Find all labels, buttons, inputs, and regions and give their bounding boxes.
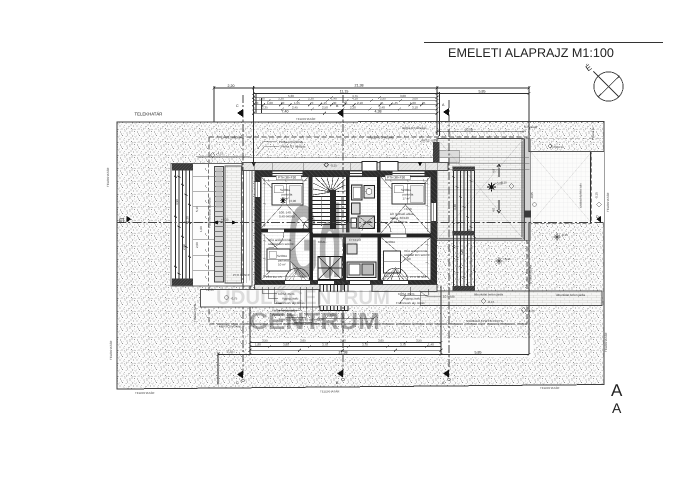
svg-text:szabad építési sáv: szabad építési sáv [579,183,583,208]
svg-text:90: 90 [255,101,259,105]
svg-text:KŐSZ 45cm: KŐSZ 45cm [398,292,415,296]
svg-text:2,55: 2,55 [380,97,386,101]
svg-text:30: 30 [467,228,471,232]
svg-text:1,20: 1,20 [186,216,190,222]
svg-text:C: C [236,104,239,108]
svg-text:TELEKHATÁR: TELEKHATÁR [540,386,560,390]
svg-text:A: A [612,400,622,416]
svg-text:PTH thn 7/5: PTH thn 7/5 [266,275,282,279]
svg-text:2,00: 2,00 [182,244,186,250]
svg-text:C: C [236,381,239,385]
svg-text:2,20: 2,20 [350,105,356,109]
svg-text:D: D [596,215,599,219]
svg-text:-0,05: -0,05 [530,192,534,199]
svg-text:2,45: 2,45 [292,105,298,109]
svg-text:3,40: 3,40 [453,204,457,210]
svg-text:2,50: 2,50 [322,105,328,109]
svg-text:Pallo kavicsolt burkolat: Pallo kavicsolt burkolat [208,197,212,228]
svg-text:3,00: 3,00 [400,94,406,98]
svg-text:10,06: 10,06 [465,128,473,132]
svg-text:5,85: 5,85 [479,89,486,93]
svg-text:3,55: 3,55 [416,339,422,343]
svg-text:A: A [611,381,623,400]
svg-text:3,80: 3,80 [283,343,289,347]
svg-text:1,45: 1,45 [392,101,398,105]
svg-text:ÉPÍTÉSI VONAL: ÉPÍTÉSI VONAL [221,136,244,140]
svg-text:5,10: 5,10 [195,206,199,212]
svg-text:1,00: 1,00 [267,101,273,105]
svg-text:nyito te.: nyito te. [554,145,565,149]
svg-text:3,70: 3,70 [400,343,406,347]
svg-text:7,40: 7,40 [282,109,289,113]
svg-text:TELEKHATÁR: TELEKHATÁR [106,167,110,187]
svg-text:-0,75: -0,75 [528,309,535,313]
svg-text:2,00: 2,00 [195,242,199,248]
svg-text:70: 70 [310,101,314,105]
svg-text:TELEKHATÁR: TELEKHATÁR [135,112,163,117]
svg-text:TELEKHATÁR: TELEKHATÁR [135,391,155,395]
svg-text:Gd: Gd [288,184,342,299]
svg-text:SZOBA: SZOBA [401,188,411,192]
svg-text:útburkolat beton járda: útburkolat beton járda [474,293,503,297]
svg-text:PTH 38+F30: PTH 38+F30 [278,176,296,180]
svg-text:SZOBA: SZOBA [385,240,395,244]
svg-text:1,80: 1,80 [255,343,261,347]
svg-text:3,90: 3,90 [175,199,179,205]
svg-text:1,00: 1,00 [199,226,203,232]
svg-text:2,10: 2,10 [357,101,363,105]
svg-text:-0,15: -0,15 [500,181,507,185]
svg-text:1,50: 1,50 [259,97,265,101]
svg-text:Piefka GT lehúzás: Piefka GT lehúzás [402,126,427,130]
svg-text:+2,35: +2,35 [206,288,214,292]
svg-text:ÜDÜLŐCENTRUM: ÜDÜLŐCENTRUM [216,286,390,309]
svg-text:-0,15: -0,15 [488,300,495,304]
svg-text:TELEKHATÁR: TELEKHATÁR [109,340,113,360]
svg-text:11,15: 11,15 [340,89,349,93]
svg-text:TRÓGLI SPB: TRÓGLI SPB [193,304,197,322]
svg-text:2, 50: 2, 50 [404,257,411,261]
svg-text:Piefka GT lehúzás: Piefka GT lehúzás [281,144,306,148]
svg-text:10 lefutó: 10 lefutó [443,295,455,299]
svg-text:-4,15: -4,15 [217,152,224,156]
svg-text:3,70: 3,70 [362,343,368,347]
svg-text:65: 65 [344,101,348,105]
svg-text:MÉRTŐI VONAL: MÉRTŐI VONAL [219,325,242,329]
svg-text:5,85: 5,85 [475,350,482,354]
svg-text:4,71: 4,71 [352,94,358,98]
svg-text:-0,15: -0,15 [595,192,599,199]
svg-text:útburkolat beton járda: útburkolat beton járda [556,293,585,297]
svg-text:4,0: 4,0 [492,207,496,212]
svg-text:+4,15: +4,15 [221,217,229,221]
svg-text:TELEKHATÁR: TELEKHATÁR [606,192,610,212]
svg-text:TELEKHATÁR: TELEKHATÁR [604,332,608,352]
svg-text:1,40: 1,40 [428,343,434,347]
svg-text:+0,15: +0,15 [503,257,511,261]
svg-text:SZOBA: SZOBA [277,254,287,258]
svg-text:Framework aly. leírás: Framework aly. leírás [396,301,425,305]
svg-text:3,65: 3,65 [378,339,384,343]
svg-text:PTH 38+F30: PTH 38+F30 [387,176,405,180]
svg-text:3,70: 3,70 [322,343,328,347]
svg-text:2,20: 2,20 [228,84,235,88]
svg-text:2,35: 2,35 [262,105,268,109]
svg-text:TELEKHATÁR: TELEKHATÁR [320,390,340,394]
svg-text:3,40: 3,40 [460,249,464,255]
svg-text:NYARALÓ ÉPÍTÉSI HELYE: NYARALÓ ÉPÍTÉSI HELYE [466,319,503,323]
svg-text:10 m²: 10 m² [278,263,286,267]
svg-text:2,30: 2,30 [308,97,314,101]
svg-text:-0,15: -0,15 [561,233,568,237]
svg-text:Pihenő te.: Pihenő te. [591,126,595,140]
svg-text:95: 95 [422,101,426,105]
svg-text:3,65: 3,65 [300,339,306,343]
svg-text:5,30: 5,30 [288,94,294,98]
svg-text:2,20: 2,20 [227,350,233,354]
svg-text:4,38: 4,38 [375,109,382,113]
svg-text:1,40: 1,40 [331,97,337,101]
svg-text:PTH 30 N+F: PTH 30 N+F [410,275,427,279]
svg-text:Agyag zsalu: Agyag zsalu [404,297,421,301]
svg-text:+3,90: +3,90 [404,207,412,211]
svg-text:21,38: 21,38 [355,84,364,88]
svg-text:3,00: 3,00 [412,97,418,101]
svg-text:PTH 30 N+F: PTH 30 N+F [233,273,250,277]
svg-text:NYOMVONAL: NYOMVONAL [529,264,533,284]
svg-text:CENTRUM: CENTRUM [249,308,380,334]
svg-text:fő nyaraló: fő nyaraló [524,125,538,129]
svg-text:-0,15: -0,15 [330,164,337,168]
svg-text:3,10: 3,10 [412,105,418,109]
svg-text:60: 60 [281,101,285,105]
svg-text:3,30: 3,30 [278,97,284,101]
svg-text:MÉLYÍTŐ VONAL: MÉLYÍTŐ VONAL [370,136,394,140]
svg-text:EMELETI ALAPRAJZ M1:100: EMELETI ALAPRAJZ M1:100 [448,46,614,60]
svg-text:TELEKHATÁR: TELEKHATÁR [296,117,316,121]
svg-text:padló feljárat: padló feljárat [390,220,407,224]
svg-text:3,55: 3,55 [262,339,268,343]
svg-text:17 m²: 17 m² [403,197,411,201]
